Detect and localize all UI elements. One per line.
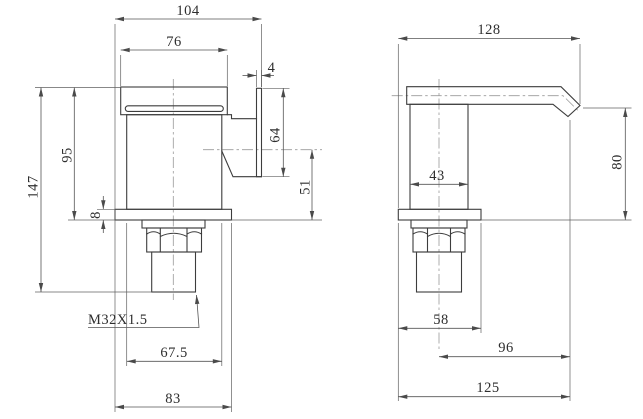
- dim-deck-to-outlet-height-label: 80: [610, 154, 626, 170]
- dim-deck-plate-depth-label: 58: [433, 312, 449, 328]
- dim-spout-top-width-label: 76: [166, 34, 182, 50]
- handle-boss: [222, 115, 262, 177]
- handle-plate: [257, 88, 262, 176]
- dim-handle-axis-to-deck: 51: [232, 150, 323, 220]
- dim-handle-plate-height-label: 64: [268, 127, 284, 143]
- dim-overall-depth-label: 128: [477, 22, 500, 38]
- dim-deck-plate-depth: 58: [398, 223, 481, 401]
- side-view-outline: [398, 87, 580, 292]
- dim-deck-plate-width-label: 83: [165, 391, 181, 407]
- spout-centerline: [392, 96, 578, 111]
- side-view-dimensions: 128 43 80 58: [398, 22, 631, 401]
- dim-overall-height: 147: [26, 88, 152, 293]
- drawing-page: 104 76 4: [0, 0, 643, 419]
- front-view-outline: [115, 87, 262, 292]
- dim-body-depth: 43: [410, 168, 468, 184]
- spout-head: [121, 87, 228, 115]
- mounting-nut-facets: [147, 228, 202, 252]
- dim-body-width-label: 67.5: [160, 345, 187, 361]
- dim-overall-height-label: 147: [26, 175, 42, 198]
- dim-overall-depth: 128: [398, 22, 580, 208]
- dim-base-to-spout-tip-label: 125: [476, 380, 499, 396]
- dim-deck-plate-thickness: 8: [88, 196, 115, 233]
- dim-handle-plate-thickness-label: 4: [268, 60, 276, 76]
- dim-handle-plate-height: 64: [263, 88, 290, 176]
- front-view-dimensions: 104 76 4: [26, 3, 323, 412]
- dim-axis-to-spout-tip-label: 96: [498, 340, 514, 356]
- dim-handle-plate-thickness: 4: [243, 60, 276, 87]
- dim-deck-to-spout-top-label: 95: [60, 147, 76, 163]
- faucet-body: [127, 115, 222, 210]
- dim-body-depth-label: 43: [429, 168, 445, 184]
- dim-overall-width: 104: [115, 3, 262, 412]
- dim-deck-to-outlet-height: 80: [481, 108, 632, 220]
- thread-spec-label: M32X1.5: [88, 312, 148, 328]
- front-view: 104 76 4: [26, 3, 323, 412]
- waterfall-outlet-slot: [125, 106, 223, 112]
- side-view-centerlines: [392, 79, 578, 352]
- dim-overall-width-label: 104: [176, 3, 200, 19]
- faucet-technical-drawing: 104 76 4: [0, 0, 643, 419]
- dim-base-to-spout-tip: 125: [398, 380, 570, 397]
- dim-body-width: 67.5: [127, 223, 222, 366]
- dim-axis-to-spout-tip: 96: [439, 120, 570, 401]
- dim-deck-plate-thickness-label: 8: [88, 211, 104, 219]
- dim-spout-top-width: 76: [121, 34, 228, 86]
- dim-handle-axis-to-deck-label: 51: [298, 179, 314, 195]
- dim-deck-to-spout-top: 95: [35, 88, 121, 221]
- thread-callout: M32X1.5: [88, 295, 199, 328]
- side-view: 128 43 80 58: [392, 22, 632, 401]
- deck-flange-side: [398, 209, 481, 220]
- spout-profile: [407, 87, 580, 117]
